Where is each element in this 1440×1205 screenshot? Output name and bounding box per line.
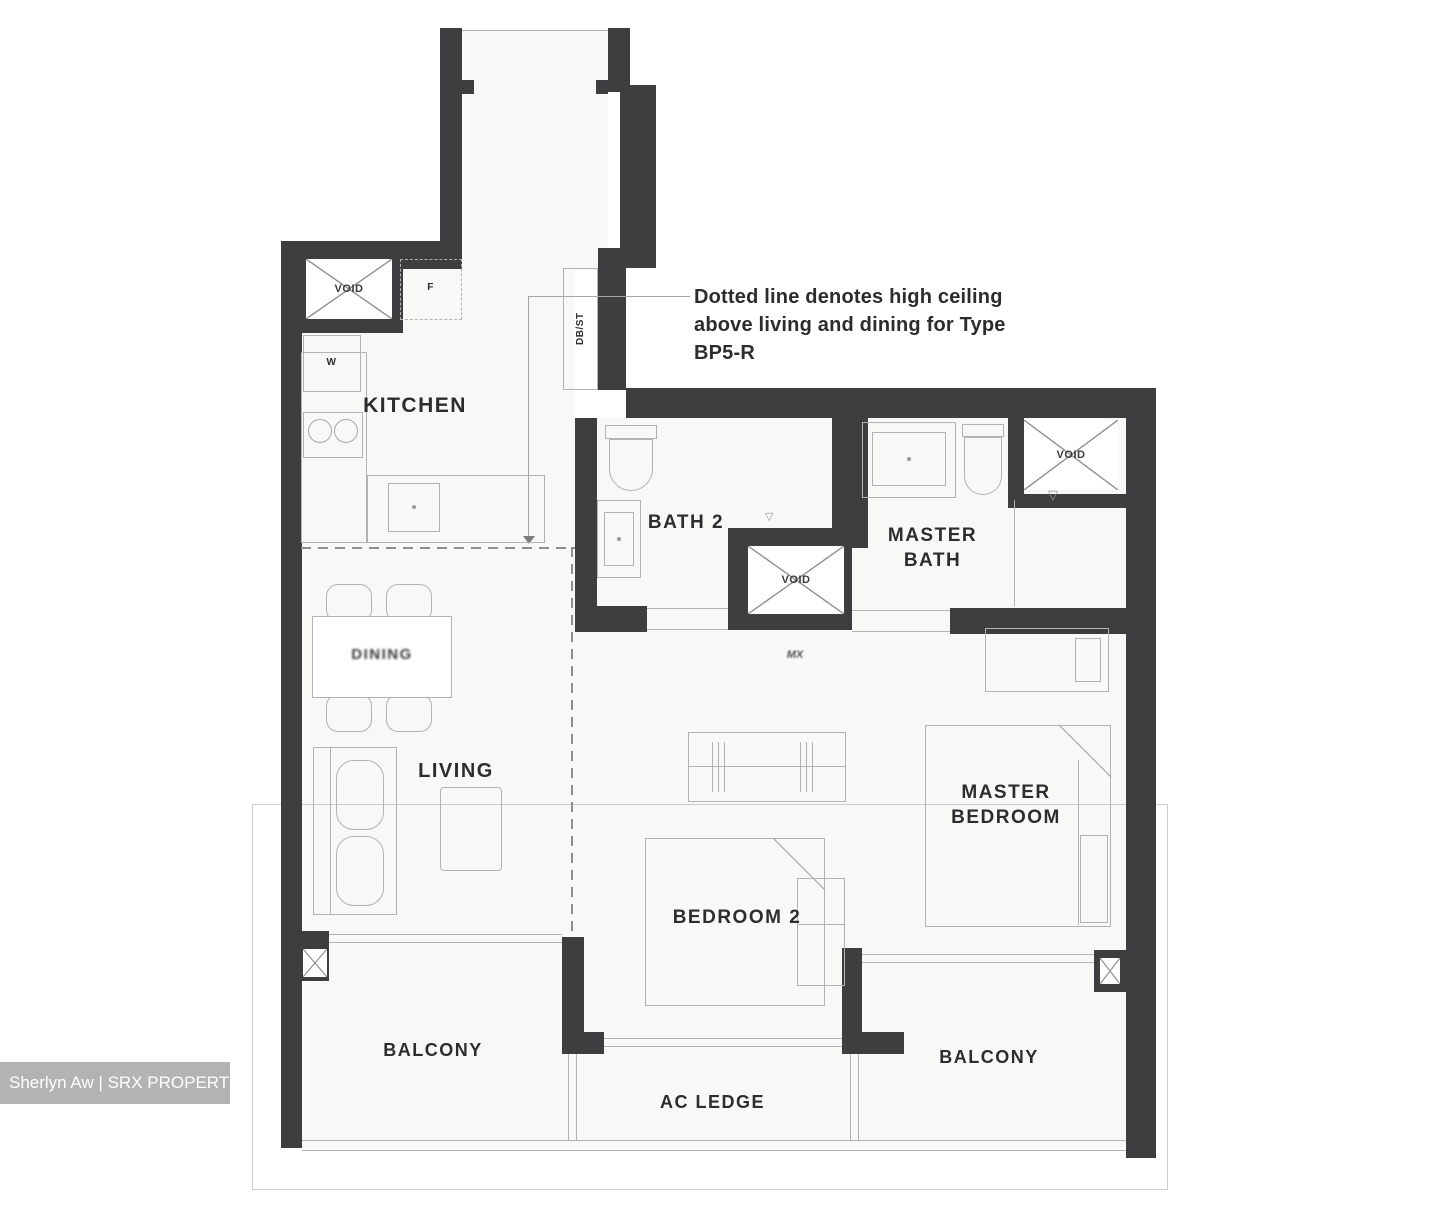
wall-right-outer xyxy=(1126,388,1156,1158)
wall xyxy=(575,606,647,632)
sofa-cushion xyxy=(336,760,384,830)
toilet-bowl xyxy=(609,439,653,491)
void-label: VOID xyxy=(782,574,811,586)
ledge-divider xyxy=(568,1054,569,1140)
balcony-window xyxy=(329,942,562,943)
note-line: BP5-R xyxy=(694,339,1014,367)
sofa-cushion xyxy=(336,836,384,906)
ac-unit-box xyxy=(303,949,327,977)
balcony-parapet xyxy=(302,1140,1126,1141)
floorplan-canvas: VOID VOID VOID ▽ ▽ F W xyxy=(0,0,1440,1205)
room-label-master-bath: MASTER BATH xyxy=(870,523,995,573)
ledge-divider xyxy=(858,1054,859,1140)
room-label-kitchen: KITCHEN xyxy=(345,392,485,420)
toilet xyxy=(605,425,657,439)
wall xyxy=(598,248,626,390)
stove-burner xyxy=(334,419,358,443)
ledge-divider xyxy=(576,1054,577,1140)
x-mark-icon xyxy=(1100,958,1120,984)
stove-burner xyxy=(308,419,332,443)
hanger xyxy=(812,742,813,792)
dining-label: DINING xyxy=(312,645,452,665)
ledge-divider xyxy=(850,1054,851,1140)
toilet xyxy=(962,424,1004,437)
balcony-window xyxy=(329,934,562,935)
door-jamb xyxy=(596,80,608,94)
coffee-table xyxy=(440,787,502,871)
balcony-parapet xyxy=(302,1150,1126,1151)
wall xyxy=(440,28,462,252)
void-label: VOID xyxy=(1057,449,1086,461)
hanger xyxy=(718,742,719,792)
bedroom2-window xyxy=(604,1038,842,1039)
basin-tap xyxy=(617,537,621,541)
bed-sheet-fold xyxy=(1059,725,1111,777)
floor-trap-symbol: ▽ xyxy=(765,512,773,523)
door-jamb xyxy=(462,80,474,94)
room-label-bedroom2: BEDROOM 2 xyxy=(664,905,810,930)
x-mark-icon xyxy=(303,949,327,977)
bath2-door-opening xyxy=(647,629,728,630)
ac-unit-box xyxy=(1100,958,1120,984)
shower-symbol: ▽ xyxy=(1048,488,1058,501)
void-box: VOID xyxy=(748,546,844,614)
masterbath-door-opening xyxy=(852,610,950,611)
dresser-drawer xyxy=(1075,638,1101,682)
wall xyxy=(842,1032,904,1054)
fridge-label: F xyxy=(400,281,462,294)
masterbath-door-opening xyxy=(852,631,950,632)
wall-left-outer xyxy=(281,241,302,1148)
note-line: Dotted line denotes high ceiling xyxy=(694,283,1014,311)
hanger xyxy=(712,742,713,792)
sink-tap xyxy=(412,505,416,509)
dining-chair xyxy=(386,694,432,732)
void-label: VOID xyxy=(335,283,364,295)
hall-mark: MX xyxy=(774,648,817,663)
high-ceiling-dotted-line xyxy=(571,547,573,937)
room-label-balcony-left: BALCONY xyxy=(358,1039,508,1063)
room-label-master-bedroom: MASTER BEDROOM xyxy=(933,780,1079,830)
wall xyxy=(608,28,630,92)
wall xyxy=(1008,494,1126,508)
wall xyxy=(1008,418,1024,502)
hanger xyxy=(724,742,725,792)
room-label-ac-ledge: AC LEDGE xyxy=(640,1091,785,1115)
watermark-banner: Sherlyn Aw | SRX PROPERTY xyxy=(0,1062,230,1104)
annotation-leader xyxy=(528,296,690,297)
room-label-bath2: BATH 2 xyxy=(628,510,744,535)
wall xyxy=(575,418,597,632)
entry-corridor-floor xyxy=(462,30,608,270)
entrance-threshold xyxy=(462,30,608,31)
hanger xyxy=(806,742,807,792)
bedside-table xyxy=(1080,835,1108,923)
wall xyxy=(620,85,656,268)
balcony-window xyxy=(862,954,1094,955)
toilet-bowl xyxy=(964,437,1002,495)
basin-tap xyxy=(907,457,911,461)
high-ceiling-dotted-line xyxy=(301,547,575,549)
watermark-text: Sherlyn Aw | SRX PROPERTY xyxy=(9,1073,240,1092)
wall-bath-top xyxy=(626,388,1156,418)
void-box: VOID xyxy=(306,259,392,319)
wall xyxy=(562,1032,604,1054)
bedside-table xyxy=(797,878,845,986)
high-ceiling-note: Dotted line denotes high ceiling above l… xyxy=(694,283,1014,367)
void-box: VOID xyxy=(1024,420,1118,490)
dbst-label: DB/ST xyxy=(563,268,598,390)
room-label-balcony-right: BALCONY xyxy=(914,1046,1064,1070)
dining-chair xyxy=(326,694,372,732)
shower-screen xyxy=(1014,500,1015,606)
room-label-living: LIVING xyxy=(396,758,516,784)
bath2-door-opening xyxy=(647,608,728,609)
sofa-back xyxy=(330,747,331,915)
balcony-window xyxy=(862,962,1094,963)
bedroom2-window xyxy=(604,1046,842,1047)
note-line: above living and dining for Type xyxy=(694,311,1014,339)
hanger xyxy=(800,742,801,792)
